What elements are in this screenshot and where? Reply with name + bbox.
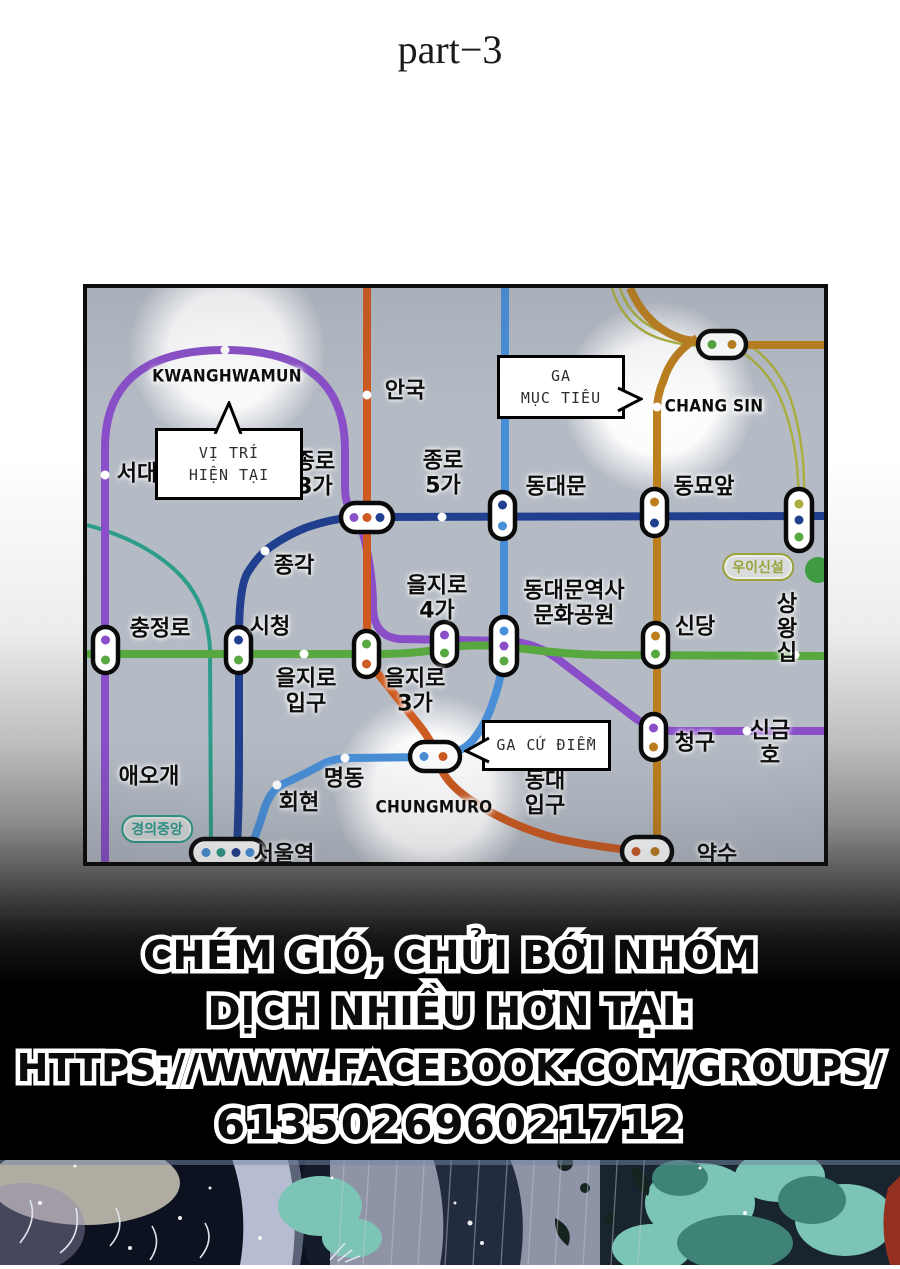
line-dot [728, 340, 737, 349]
station-label-jonggak: 종각 [274, 555, 314, 580]
interchange-oval-chungmuro [410, 742, 460, 771]
bubble-pointer-left-icon [464, 735, 491, 765]
line-ui-path [737, 349, 799, 500]
manhwa-artwork-strip [0, 1148, 900, 1265]
interchange-oval-dongmyo [642, 489, 667, 536]
line-dot [440, 631, 449, 640]
line-dot [101, 656, 110, 665]
line-dot [650, 519, 659, 528]
line-dot [649, 724, 658, 733]
line-dot [651, 632, 660, 641]
line-dot [362, 640, 371, 649]
line-dot [651, 650, 660, 659]
station-label-chungjeongno: 충정로 [130, 618, 191, 643]
station-label-changsin: CHANG SIN [665, 397, 764, 416]
station-dot [341, 754, 350, 763]
line-dot [795, 500, 804, 509]
station-label-yaksu: 약수 [697, 844, 737, 866]
interchange-oval-yaksu [622, 837, 672, 862]
station-label-jongno5ga: 종로 5가 [423, 449, 463, 498]
scene-top-black-strip [0, 1148, 900, 1160]
station-label-aeogae: 애오개 [119, 766, 180, 791]
line-dot [202, 848, 211, 857]
station-label-chungmuro: CHUNGMURO [376, 798, 493, 817]
station-label-dongdaemun: 동대문 [526, 476, 587, 501]
line-dot [500, 657, 509, 666]
station-label-dongmyo: 동묘앞 [674, 476, 735, 501]
line-dot [350, 513, 359, 522]
line-dot [795, 516, 804, 525]
line-dot [500, 627, 509, 636]
interchange-oval-cheonggu [641, 714, 666, 760]
station-dot [300, 650, 309, 659]
credit-line-url: HTTPS://WWW.FACEBOOK.COM/GROUPS/ HTTPS:/… [0, 1046, 900, 1090]
bubble-pointer-right-icon [616, 384, 643, 414]
line-dot [439, 752, 448, 761]
badge-ui-sinseol-line: 우이신설 [722, 553, 794, 581]
line-dot [234, 656, 243, 665]
line-dot [632, 847, 641, 856]
station-label-dongdae-ipgu: 동대 입구 [525, 769, 565, 818]
line-dot [795, 533, 804, 542]
station-label-cityhall: 시청 [250, 616, 290, 641]
station-label-sangwangsimni: 상왕십 [769, 593, 806, 667]
station-label-hoehyeon: 회현 [279, 792, 319, 817]
line-dot [217, 848, 226, 857]
line-dot [498, 522, 507, 531]
credit-line-url-text: HTTPS://WWW.FACEBOOK.COM/GROUPS/ [17, 1046, 884, 1090]
bubble-text: GA MỤC TIÊU [521, 365, 601, 410]
station-dot [101, 471, 110, 480]
interchange-oval-dongdaemun [490, 492, 515, 539]
station-label-euljiro3ga: 을지로 3가 [385, 667, 446, 716]
line-6-path [657, 338, 697, 862]
line-dot [363, 513, 372, 522]
station-dot [363, 391, 372, 400]
line-dot [708, 340, 717, 349]
bubble-text: GA CỨ ĐIỂM [496, 734, 596, 757]
rain-forest-scene [0, 1148, 900, 1265]
line-dot [649, 743, 658, 752]
annotation-bubble-current-location: VỊ TRÍ HIỆN TẠI [155, 428, 303, 500]
line-dot [500, 642, 509, 651]
station-label-seoul-station: 서울역 [254, 844, 315, 866]
scene-top-highlight [0, 1160, 900, 1165]
line-dot [376, 513, 385, 522]
station-dot [221, 346, 230, 355]
line-dot [420, 752, 429, 761]
annotation-bubble-base-station: GA CỨ ĐIỂM [482, 720, 611, 771]
station-dot [653, 403, 662, 412]
interchange-oval-euljiro4ga [432, 622, 457, 666]
interchange-oval-chungjeongno [93, 627, 118, 673]
subway-map-panel: 안국 서대 종로 3가 종로 5가 동대문 동묘앞 종각 을지로 4가 동대문역… [83, 284, 828, 866]
line-dot [498, 501, 507, 510]
station-label-euljiro4ga: 을지로 4가 [407, 574, 468, 623]
line-dot [440, 649, 449, 658]
badge-gyeongui-jungang-line: 경의중앙 [121, 815, 193, 843]
station-label-singeumho: 신금호 [743, 719, 797, 768]
station-label-cheonggu: 청구 [675, 732, 715, 757]
station-label-ddm-park: 동대문역사 문화공원 [523, 579, 624, 628]
interchange-oval-cityhall [226, 627, 251, 673]
credit-line-group-id-text: 613502696021712 [216, 1100, 684, 1149]
page-title: part−3 [0, 26, 900, 73]
line2-branch-circle [805, 557, 824, 583]
station-dot [261, 547, 270, 556]
line-ui-path [744, 342, 804, 500]
station-label-seodaemun: 서대 [117, 463, 157, 488]
station-label-anguk: 안국 [385, 380, 425, 405]
credit-line-2: DỊCH NHIỀU HƠN TẠI: DỊCH NHIỀU HƠN TẠI: [0, 989, 900, 1035]
credit-line-1-text: CHÉM GIÓ, CHỬI BỚI NHÓM [143, 933, 757, 979]
line-dot [234, 636, 243, 645]
interchange-oval-changsin [698, 331, 746, 358]
station-label-myeongdong: 명동 [324, 768, 364, 793]
credit-line-group-id: 613502696021712 613502696021712 [0, 1100, 900, 1149]
credit-line-2-text: DỊCH NHIỀU HƠN TẠI: [207, 989, 692, 1035]
line-dot [650, 498, 659, 507]
line-ui-path [612, 288, 712, 346]
station-dot [438, 513, 447, 522]
bubble-pointer-up-icon [208, 401, 248, 434]
station-label-sindang: 신당 [675, 616, 715, 641]
interchange-oval-euljiro3ga [354, 631, 379, 677]
annotation-bubble-target-station: GA MỤC TIÊU [497, 355, 625, 419]
station-dot [273, 781, 282, 790]
station-label-kwanghwamun: KWANGHWAMUN [152, 367, 302, 386]
line-dot [362, 660, 371, 669]
line-dot [651, 847, 660, 856]
line-dot [232, 848, 241, 857]
interchange-oval-sindang [643, 623, 668, 667]
credit-line-1: CHÉM GIÓ, CHỬI BỚI NHÓM CHÉM GIÓ, CHỬI B… [0, 933, 900, 979]
line-dot [101, 636, 110, 645]
bubble-text: VỊ TRÍ HIỆN TẠI [189, 442, 269, 487]
station-label-euljiroipgu: 을지로 입구 [276, 667, 337, 716]
